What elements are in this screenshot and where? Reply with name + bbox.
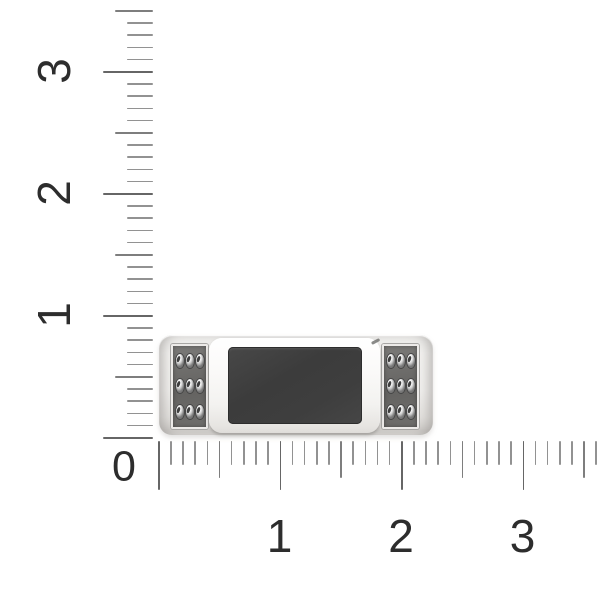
horizontal-ruler-label-1: 1 xyxy=(267,513,293,559)
vertical-ruler-tick-minor xyxy=(127,230,153,232)
horizontal-ruler-tick-medium xyxy=(583,441,585,478)
horizontal-ruler-tick-minor xyxy=(547,441,549,465)
horizontal-ruler-tick-medium xyxy=(219,441,221,478)
vertical-ruler-tick-minor xyxy=(127,291,153,293)
vertical-ruler-tick-minor xyxy=(127,217,153,219)
vertical-ruler-tick-minor xyxy=(127,327,153,329)
vertical-ruler-label-2: 2 xyxy=(31,180,77,206)
horizontal-ruler-tick-minor xyxy=(425,441,427,465)
vertical-ruler-label-3: 3 xyxy=(31,58,77,84)
horizontal-ruler-tick-minor xyxy=(231,441,233,465)
diamond-gem xyxy=(406,378,416,394)
vertical-ruler-tick-minor xyxy=(127,352,153,354)
horizontal-ruler-tick-minor xyxy=(377,441,379,465)
vertical-ruler-tick-minor xyxy=(127,144,153,146)
vertical-ruler-tick-minor xyxy=(127,34,153,36)
vertical-ruler-tick-major xyxy=(103,437,153,439)
diamond-gem xyxy=(396,353,406,369)
vertical-ruler-tick-minor xyxy=(127,339,153,341)
ring-top-view xyxy=(159,335,433,435)
diamond-gem xyxy=(386,378,396,394)
horizontal-ruler-tick-major xyxy=(280,441,282,490)
vertical-ruler-tick-major xyxy=(103,71,153,73)
horizontal-ruler-tick-minor xyxy=(365,441,367,465)
vertical-ruler-tick-medium xyxy=(115,376,153,378)
vertical-ruler-tick-minor xyxy=(127,181,153,183)
horizontal-ruler-tick-major xyxy=(523,441,525,490)
horizontal-ruler-tick-major xyxy=(401,441,403,490)
vertical-ruler-tick-minor xyxy=(127,22,153,24)
horizontal-ruler-tick-minor xyxy=(486,441,488,465)
diamond-gem xyxy=(195,404,205,420)
vertical-ruler-tick-major xyxy=(103,315,153,317)
horizontal-ruler-tick-minor xyxy=(474,441,476,465)
center-bezel xyxy=(209,338,380,433)
diamond-gem xyxy=(175,378,185,394)
horizontal-ruler-tick-minor xyxy=(498,441,500,465)
horizontal-ruler-tick-minor xyxy=(559,441,561,465)
horizontal-ruler-tick-minor xyxy=(255,441,257,465)
vertical-ruler-tick-minor xyxy=(127,388,153,390)
horizontal-ruler-tick-minor xyxy=(535,441,537,465)
horizontal-ruler-tick-major xyxy=(158,441,160,490)
vertical-ruler-tick-minor xyxy=(127,95,153,97)
vertical-ruler-tick-minor xyxy=(127,400,153,402)
right-diamond-panel xyxy=(382,344,419,429)
vertical-ruler-tick-minor xyxy=(127,425,153,427)
vertical-ruler-tick-major xyxy=(103,193,153,195)
horizontal-ruler-tick-minor xyxy=(571,441,573,465)
diamond-gem xyxy=(175,404,185,420)
vertical-ruler-tick-minor xyxy=(127,83,153,85)
horizontal-ruler-tick-minor xyxy=(413,441,415,465)
horizontal-ruler-label-3: 3 xyxy=(510,513,536,559)
horizontal-ruler-tick-minor xyxy=(292,441,294,465)
horizontal-ruler-tick-minor xyxy=(194,441,196,465)
vertical-ruler-tick-minor xyxy=(127,108,153,110)
ruler-labels: 321123 xyxy=(0,0,600,600)
diamond-gem xyxy=(195,378,205,394)
diamond-gem xyxy=(185,378,195,394)
vertical-ruler-tick-minor xyxy=(127,303,153,305)
diamond-gem xyxy=(185,404,195,420)
product-photo-scene: 321123 0 xyxy=(0,0,600,600)
diamond-gem xyxy=(396,404,406,420)
horizontal-ruler-tick-minor xyxy=(450,441,452,465)
horizontal-ruler-tick-minor xyxy=(316,441,318,465)
horizontal-ruler-tick-minor xyxy=(595,441,597,465)
vertical-ruler-tick-minor xyxy=(127,156,153,158)
diamond-gem xyxy=(386,404,396,420)
vertical-ruler-tick-minor xyxy=(127,205,153,207)
horizontal-ruler-tick-minor xyxy=(304,441,306,465)
vertical-ruler xyxy=(0,0,600,600)
vertical-ruler-tick-medium xyxy=(115,132,153,134)
diamond-gem xyxy=(175,353,185,369)
horizontal-ruler-tick-minor xyxy=(510,441,512,465)
vertical-ruler-tick-minor xyxy=(127,59,153,61)
horizontal-ruler-tick-minor xyxy=(170,441,172,465)
vertical-ruler-tick-minor xyxy=(127,169,153,171)
horizontal-ruler-tick-medium xyxy=(340,441,342,478)
vertical-ruler-tick-minor xyxy=(127,242,153,244)
vertical-ruler-tick-medium xyxy=(115,10,153,12)
horizontal-ruler-tick-minor xyxy=(207,441,209,465)
diamond-gem xyxy=(406,404,416,420)
horizontal-ruler-label-2: 2 xyxy=(388,513,414,559)
horizontal-ruler-tick-minor xyxy=(328,441,330,465)
diamond-gem xyxy=(396,378,406,394)
diamond-gem xyxy=(406,353,416,369)
vertical-ruler-tick-minor xyxy=(127,120,153,122)
horizontal-ruler-tick-minor xyxy=(437,441,439,465)
horizontal-ruler xyxy=(0,0,600,600)
horizontal-ruler-tick-minor xyxy=(389,441,391,465)
black-onyx-inlay xyxy=(228,347,362,424)
vertical-ruler-tick-minor xyxy=(127,278,153,280)
horizontal-ruler-tick-minor xyxy=(182,441,184,465)
vertical-ruler-tick-medium xyxy=(115,254,153,256)
horizontal-ruler-tick-medium xyxy=(462,441,464,478)
horizontal-ruler-tick-minor xyxy=(243,441,245,465)
horizontal-ruler-tick-minor xyxy=(352,441,354,465)
horizontal-ruler-tick-minor xyxy=(267,441,269,465)
vertical-ruler-label-1: 1 xyxy=(31,302,77,328)
diamond-gem xyxy=(185,353,195,369)
diamond-gem xyxy=(195,353,205,369)
diamond-gem xyxy=(386,353,396,369)
vertical-ruler-tick-minor xyxy=(127,364,153,366)
vertical-ruler-tick-minor xyxy=(127,413,153,415)
vertical-ruler-tick-minor xyxy=(127,266,153,268)
origin-label: 0 xyxy=(112,446,136,489)
left-diamond-panel xyxy=(171,344,208,429)
vertical-ruler-tick-minor xyxy=(127,47,153,49)
